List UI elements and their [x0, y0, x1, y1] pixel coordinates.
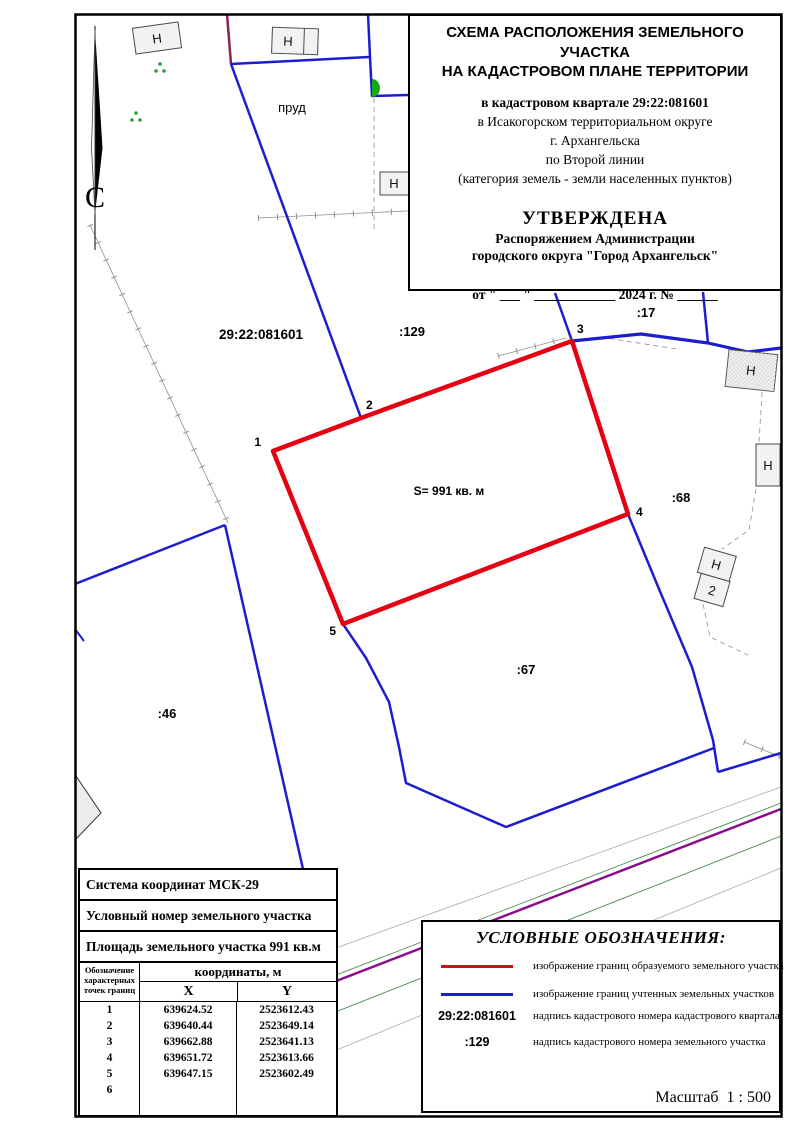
- legend-box: УСЛОВНЫЕ ОБОЗНАЧЕНИЯ: изображение границ…: [421, 920, 781, 1113]
- leaf-symbol: [372, 79, 380, 97]
- cadastral-scheme-page: 1 2 3 4 5 29:22:081601 :129 :17 :68 :67 …: [0, 0, 800, 1131]
- y-coordinate-cell: 2523612.43: [237, 1002, 336, 1018]
- quarter-number-sample: 29:22:081601: [431, 1009, 523, 1023]
- x-coordinate-cell: [140, 1082, 236, 1098]
- x-coordinate-cell: 639651.72: [140, 1050, 236, 1066]
- legend-item-parcel-number: :129 надпись кадастрового номера земельн…: [431, 1034, 779, 1050]
- building-nonres-3: Н: [380, 172, 409, 195]
- legend-item-registered-boundary: изображение границ учтенных земельных уч…: [431, 986, 779, 1002]
- blue-line-sample: [441, 993, 513, 996]
- parcel-46-label: :46: [158, 706, 177, 721]
- parcel-point-labels: 1 2 3 4 5: [254, 322, 643, 638]
- building-label: Н: [389, 176, 398, 191]
- parcel-129-label: :129: [399, 324, 425, 339]
- parcel-number-sample: :129: [431, 1035, 523, 1049]
- cadastral-quarter-line: в кадастровом квартале 29:22:081601: [410, 95, 780, 111]
- scale-label: Масштаб 1 : 500: [655, 1089, 771, 1107]
- coordinates-table: Система координат МСК-29 Условный номер …: [78, 868, 338, 1117]
- building-nonres-4: Н: [725, 350, 778, 392]
- y-coordinate-cell: 2523649.14: [237, 1018, 336, 1034]
- building-label: Н: [745, 363, 756, 379]
- point-label-2: 2: [366, 398, 373, 412]
- x-coordinate-cell: 639662.88: [140, 1034, 236, 1050]
- building-label: Н: [763, 458, 772, 473]
- x-coordinate-cell: 639624.52: [140, 1002, 236, 1018]
- coordinates-header: координаты, м: [140, 963, 336, 982]
- scheme-title-line2: НА КАДАСТРОВОМ ПЛАНЕ ТЕРРИТОРИИ: [414, 62, 776, 82]
- building-nonres-1: Н: [132, 22, 181, 54]
- coord-system-row: Система координат МСК-29: [80, 870, 336, 901]
- street-line: по Второй линии: [410, 152, 780, 168]
- district-line: в Исакогорском территориальном округе: [410, 114, 780, 130]
- city-line: г. Архангельска: [410, 133, 780, 149]
- formed-parcel-boundary: [273, 341, 628, 624]
- pond-label: пруд: [278, 100, 306, 115]
- conditional-number-row: Условный номер земельного участка: [80, 901, 336, 932]
- x-column-header: X: [140, 982, 238, 1001]
- cadastral-quarter-label: 29:22:081601: [219, 327, 304, 342]
- y-coordinate-cell: [237, 1082, 336, 1098]
- point-number-cell: 4: [80, 1050, 139, 1066]
- legend-item-label: надпись кадастрового номера земельного у…: [533, 1036, 766, 1048]
- parcel-area-label: S= 991 кв. м: [414, 484, 485, 498]
- building-nonres-6: Н 2: [690, 547, 737, 606]
- approved-by-line1: Распоряжением Администрации: [410, 231, 780, 247]
- y-coordinate-cell: 2523641.13: [237, 1034, 336, 1050]
- parcel-area-row: Площадь земельного участка 991 кв.м: [80, 932, 336, 963]
- north-arrow: С: [85, 26, 105, 250]
- scheme-title-line1: СХЕМА РАСПОЛОЖЕНИЯ ЗЕМЕЛЬНОГО УЧАСТКА: [414, 23, 776, 62]
- legend-item-label: изображение границ учтенных земельных уч…: [533, 988, 774, 1000]
- legend-item-formed-boundary: изображение границ образуемого земельног…: [431, 958, 779, 974]
- y-coordinate-cell: 2523602.49: [237, 1066, 336, 1082]
- point-number-cell: 5: [80, 1066, 139, 1082]
- point-label-1: 1: [254, 435, 261, 449]
- legend-item-label: надпись кадастрового номера кадастрового…: [533, 1010, 780, 1022]
- approval-date-line: от " ___ " ____________ 2024 г. № ______: [410, 287, 780, 303]
- point-number-cell: 3: [80, 1034, 139, 1050]
- approved-by-line2: городского округа "Город Архангельск": [410, 248, 780, 264]
- building-corner-sw: [76, 776, 101, 839]
- tree-symbols: [130, 62, 380, 122]
- parcel-17-label: :17: [637, 305, 656, 320]
- point-label-3: 3: [577, 322, 584, 336]
- legend-title: УСЛОВНЫЕ ОБОЗНАЧЕНИЯ:: [423, 928, 779, 948]
- building-label: Н: [283, 34, 293, 49]
- building-nonres-2: Н: [272, 27, 319, 55]
- x-coordinate-cell: 639647.15: [140, 1066, 236, 1082]
- x-coordinate-cell: 639640.44: [140, 1018, 236, 1034]
- point-label-5: 5: [329, 624, 336, 638]
- building-nonres-5: Н: [756, 444, 780, 486]
- land-category-line: (категория земель - земли населенных пун…: [410, 171, 780, 187]
- points-column-header: Обозначение характерных точек границ: [80, 963, 140, 1001]
- point-number-cell: 1: [80, 1002, 139, 1018]
- legend-item-label: изображение границ образуемого земельног…: [533, 960, 784, 972]
- point-label-4: 4: [636, 505, 643, 519]
- legend-item-quarter-number: 29:22:081601 надпись кадастрового номера…: [431, 1008, 779, 1024]
- y-column-header: Y: [238, 982, 336, 1001]
- point-number-cell: 6: [80, 1082, 139, 1098]
- y-coordinate-cell: 2523613.66: [237, 1050, 336, 1066]
- point-number-cell: 2: [80, 1018, 139, 1034]
- north-label: С: [85, 181, 105, 214]
- table-data: 1 2 3 4 5 6 639624.52 639640.44 639662.8…: [80, 1002, 336, 1115]
- parcel-67-label: :67: [517, 662, 536, 677]
- approved-title: УТВЕРЖДЕНА: [410, 208, 780, 230]
- red-line-sample: [441, 965, 513, 968]
- parcel-68-label: :68: [672, 490, 691, 505]
- table-header: Обозначение характерных точек границ коо…: [80, 963, 336, 1002]
- title-block: СХЕМА РАСПОЛОЖЕНИЯ ЗЕМЕЛЬНОГО УЧАСТКА НА…: [408, 14, 782, 291]
